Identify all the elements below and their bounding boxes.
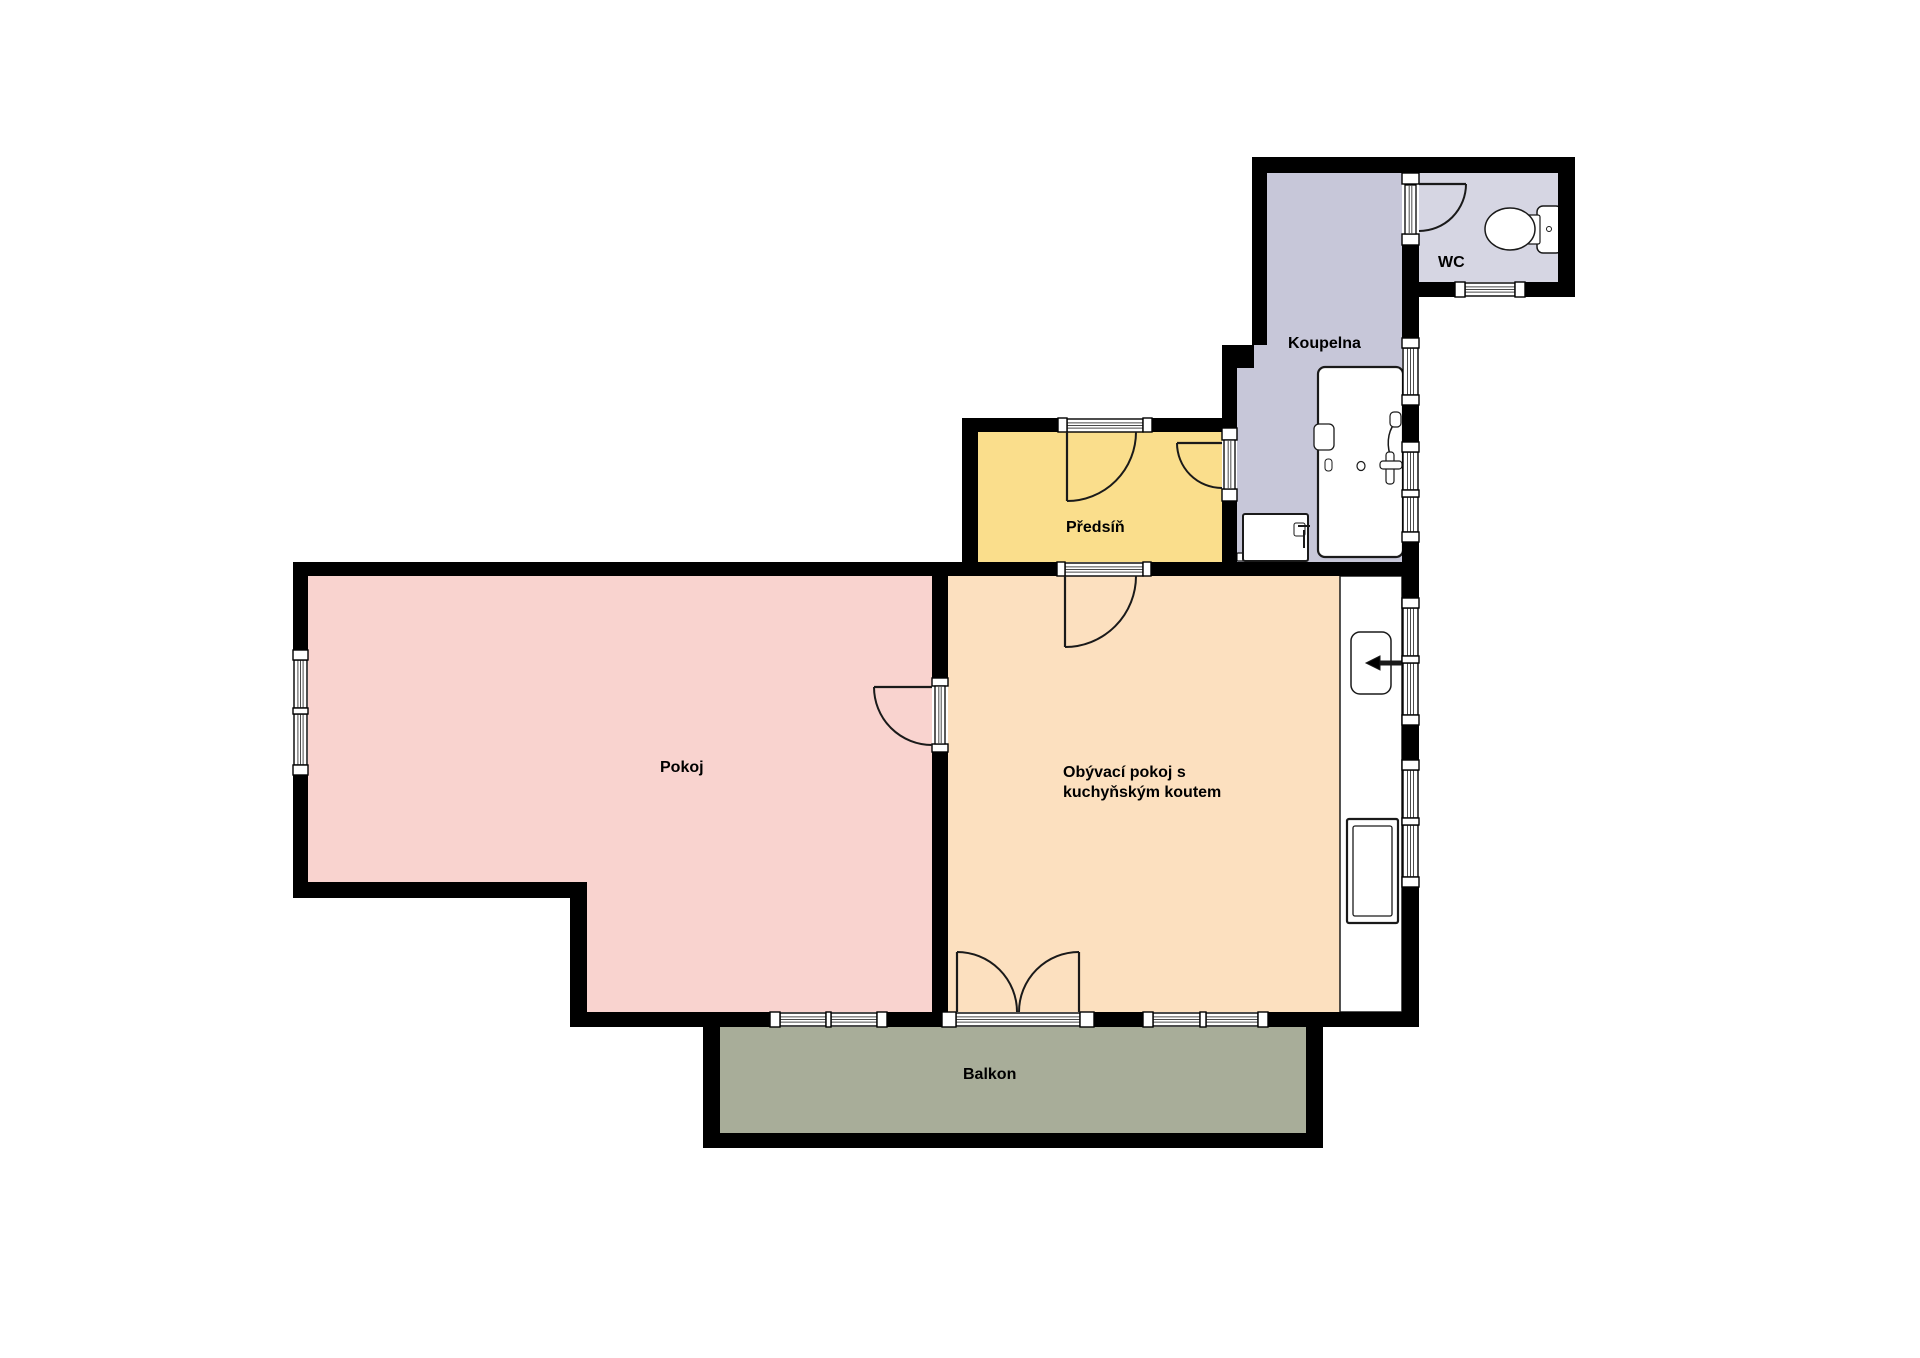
window-jamb xyxy=(1402,760,1419,770)
room-label-obyvaci-pokoj: Obývací pokoj s xyxy=(1063,764,1186,781)
wall xyxy=(570,882,587,1027)
wall xyxy=(293,562,308,650)
window-jamb xyxy=(1402,442,1419,452)
wall xyxy=(570,1012,770,1027)
pokoj-window-b xyxy=(294,714,307,765)
window-jamb xyxy=(1402,598,1419,608)
koupelna-door-panel xyxy=(1224,440,1235,489)
window-jamb xyxy=(1402,532,1419,542)
wall xyxy=(1402,405,1419,442)
window-jamb xyxy=(1402,715,1419,725)
floorplan-svg: PokojObývací pokoj skuchyňským koutemPře… xyxy=(0,0,1920,1358)
window-jamb xyxy=(1080,1012,1094,1027)
wc-door-panel xyxy=(1405,185,1416,234)
wall xyxy=(703,1027,720,1148)
kitchen-window-2b xyxy=(1403,825,1418,877)
wall xyxy=(1094,1012,1143,1027)
wall xyxy=(1306,1027,1323,1148)
window-jamb xyxy=(826,1012,831,1027)
bathtub-soap-dish xyxy=(1314,424,1334,450)
wc-door-panel-bar xyxy=(1405,185,1416,234)
pokoj-balcony-window-left xyxy=(780,1013,826,1026)
window-jamb xyxy=(1402,338,1419,348)
bathtub-drain xyxy=(1357,462,1365,471)
hall-living-threshold xyxy=(1065,563,1143,576)
wall xyxy=(1525,282,1575,297)
kitchen-window-1b xyxy=(1403,663,1418,715)
wall xyxy=(932,576,948,678)
koupelna-window-2a xyxy=(1403,452,1418,490)
kitchen-window-1a xyxy=(1403,608,1418,656)
window-jamb xyxy=(293,650,308,660)
room-label-predsin: Předsíň xyxy=(1066,519,1125,536)
window-jamb xyxy=(1515,282,1525,297)
window-jamb xyxy=(1143,562,1151,576)
room-label-wc: WC xyxy=(1438,254,1465,271)
floorplan-canvas: PokojObývací pokoj skuchyňským koutemPře… xyxy=(0,0,1920,1358)
toilet-button xyxy=(1547,227,1552,232)
window-jamb xyxy=(1222,489,1237,501)
pokoj-door-panel-bar xyxy=(935,686,945,744)
window-jamb xyxy=(877,1012,887,1027)
balcony-door-threshold xyxy=(956,1013,1080,1026)
room-label-koupelna: Koupelna xyxy=(1288,335,1361,352)
wall xyxy=(1252,157,1575,173)
stove-inner xyxy=(1353,826,1392,916)
window-jamb xyxy=(293,765,308,775)
window-jamb xyxy=(1143,418,1152,432)
wall xyxy=(1268,1012,1418,1027)
koupelna-door-panel-bar xyxy=(1224,440,1235,489)
pokoj-door-panel xyxy=(935,686,945,744)
window-jamb xyxy=(1455,282,1465,297)
wall xyxy=(1558,157,1575,297)
window-jamb xyxy=(1402,234,1419,245)
window-jamb xyxy=(1057,562,1065,576)
window-jamb xyxy=(1402,173,1419,184)
window-jamb xyxy=(1200,1012,1206,1027)
pokoj-balcony-window-right xyxy=(831,1013,877,1026)
window-jamb xyxy=(1402,656,1419,663)
wall xyxy=(1252,157,1267,345)
wc-window xyxy=(1465,283,1515,296)
pokoj-window-a xyxy=(294,660,307,708)
window-jamb xyxy=(942,1012,956,1027)
entrance-threshold xyxy=(1067,419,1143,432)
koupelna-window-1 xyxy=(1403,348,1418,395)
washing-machine xyxy=(1243,514,1308,561)
koupelna-window-2b xyxy=(1403,497,1418,532)
room-predsin xyxy=(978,432,1222,562)
wall xyxy=(887,1012,942,1027)
toilet-bowl xyxy=(1485,208,1535,250)
window-jamb xyxy=(1402,490,1419,497)
wall xyxy=(1402,725,1419,760)
wall xyxy=(1402,245,1419,338)
window-jamb xyxy=(1258,1012,1268,1027)
wall xyxy=(293,562,1057,576)
wall xyxy=(293,775,308,898)
room-label-obyvaci-pokoj: kuchyňským koutem xyxy=(1063,784,1221,801)
window-jamb xyxy=(932,678,948,686)
wall xyxy=(1222,501,1237,562)
window-jamb xyxy=(1143,1012,1153,1027)
window-jamb xyxy=(1402,818,1419,825)
wall xyxy=(293,882,587,898)
window-jamb xyxy=(293,708,308,714)
bathtub-knob xyxy=(1325,459,1332,471)
window-jamb xyxy=(932,744,948,752)
bathtub-shower-head xyxy=(1390,412,1401,427)
kitchen-window-2a xyxy=(1403,770,1418,818)
wall xyxy=(703,1133,1323,1148)
living-balcony-window-left xyxy=(1153,1013,1200,1026)
room-label-balkon: Balkon xyxy=(963,1066,1016,1083)
wall xyxy=(1151,562,1418,576)
wall xyxy=(1402,887,1419,1027)
window-jamb xyxy=(1402,877,1419,887)
window-jamb xyxy=(770,1012,780,1027)
living-balcony-window-right xyxy=(1206,1013,1258,1026)
bathtub-mixer-horizontal xyxy=(1380,461,1402,469)
wall xyxy=(962,418,978,576)
room-label-pokoj: Pokoj xyxy=(660,759,704,776)
window-jamb xyxy=(1222,428,1237,440)
window-jamb xyxy=(1058,418,1067,432)
wall xyxy=(932,752,948,1012)
wall xyxy=(1222,345,1254,368)
window-jamb xyxy=(1402,395,1419,405)
